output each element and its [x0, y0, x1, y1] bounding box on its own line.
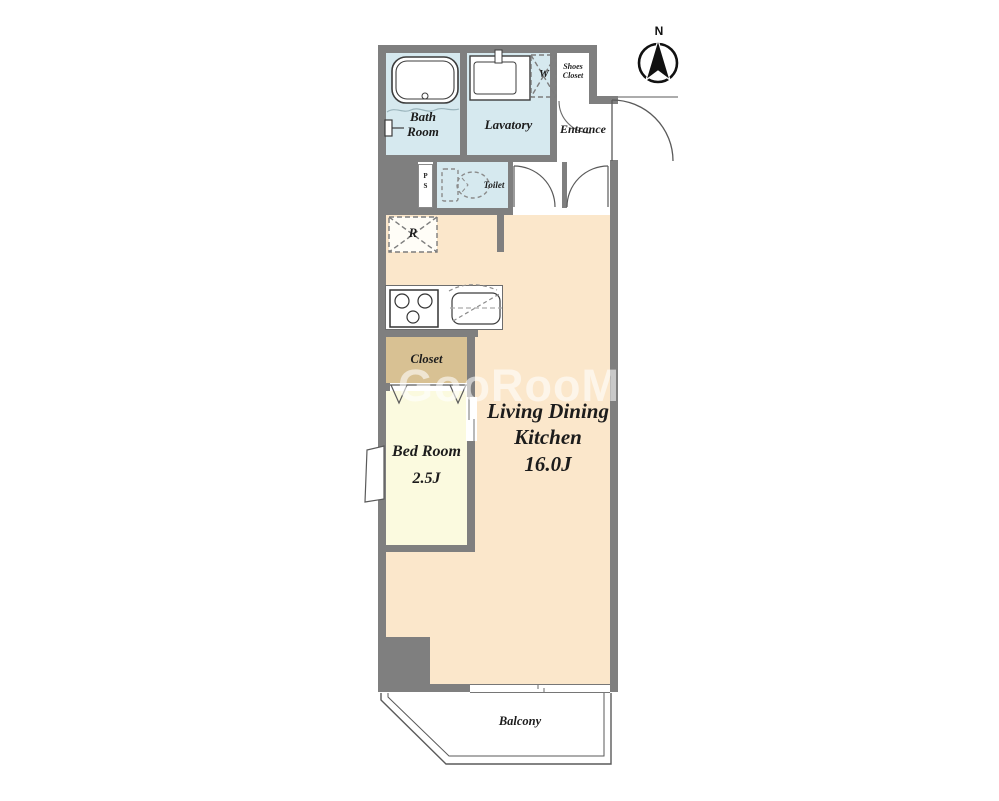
wall-notch-block: [378, 637, 430, 692]
toilet-label: Toilet: [478, 180, 510, 190]
wall-closet-top: [378, 330, 478, 337]
wall-kitchen-stub: [497, 215, 504, 252]
wall-entrance-top: [589, 96, 618, 104]
watermark: GooRooM: [398, 360, 628, 412]
pipe-space-label: P S: [419, 172, 432, 192]
bedroom-label-name: Bed Room: [384, 438, 469, 465]
floor-plan: Bath Room Lavatory Shoes Closet Entrance…: [0, 0, 999, 801]
wall-left: [378, 45, 386, 692]
bath-room-label-line1: Bath: [388, 110, 458, 125]
wall-hall-divider: [562, 162, 567, 208]
pipe-space-label-line1: P: [419, 172, 432, 182]
kitchen-counter: [385, 285, 503, 330]
shoes-closet-label: Shoes Closet: [555, 62, 591, 80]
lavatory-label: Lavatory: [467, 118, 550, 133]
bedroom-label: Bed Room 2.5J: [384, 438, 469, 492]
ldk-label-line2: Kitchen: [458, 424, 638, 450]
refrigerator-label: R: [403, 226, 423, 241]
balcony-window-band: [470, 684, 610, 693]
wall-bedroom-top-stub: [378, 383, 390, 391]
wall-bedroom-bottom: [378, 545, 475, 552]
balcony-outline: [381, 693, 611, 764]
compass-n-label: N: [650, 24, 668, 38]
north-compass-icon: [639, 40, 677, 82]
shoes-closet-label-line2: Closet: [555, 71, 591, 80]
washing-machine-label: W: [535, 68, 553, 81]
wall-below-toilet-row: [378, 208, 513, 215]
wall-top: [378, 45, 597, 53]
wall-ps-right: [433, 162, 437, 208]
shoes-closet-label-line1: Shoes: [555, 62, 591, 71]
wall-bath-right: [460, 52, 467, 155]
wall-below-bath-lav: [378, 155, 557, 162]
bedroom-label-size: 2.5J: [384, 465, 469, 492]
entrance-label: Entrance: [554, 123, 612, 137]
ldk-label-size: 16.0J: [458, 451, 638, 477]
bath-room-label: Bath Room: [388, 110, 458, 140]
entrance-door-arc: [612, 97, 678, 161]
pipe-space-label-line2: S: [419, 182, 432, 192]
bath-room-label-line2: Room: [388, 125, 458, 140]
balcony-label: Balcony: [460, 714, 580, 728]
